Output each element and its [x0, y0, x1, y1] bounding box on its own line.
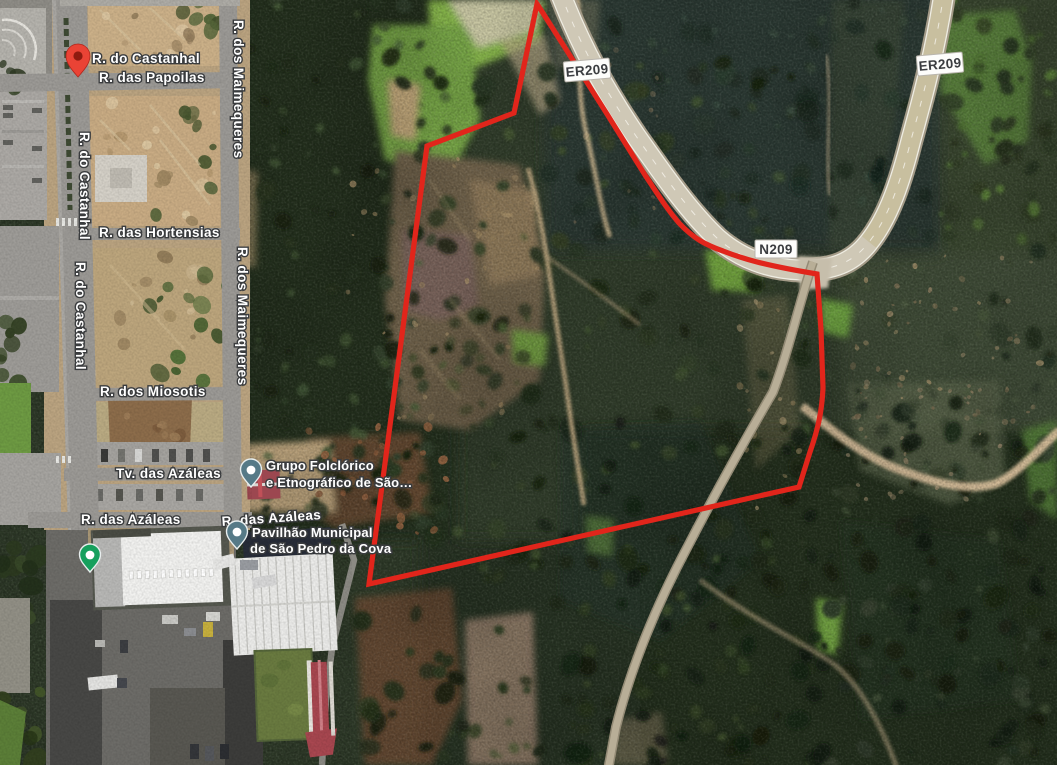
svg-text:R. dos Maimequeres: R. dos Maimequeres [235, 247, 250, 386]
svg-text:Tv. das Azáleas: Tv. das Azáleas [116, 466, 221, 481]
svg-text:R. das Hortensias: R. das Hortensias [99, 225, 220, 240]
svg-text:R. dos Miosotis: R. dos Miosotis [100, 384, 206, 399]
svg-text:Pavilhão Municipal: Pavilhão Municipal [252, 525, 373, 540]
svg-text:e Etnográfico de São…: e Etnográfico de São… [266, 475, 413, 490]
svg-text:R. do Castanhal: R. do Castanhal [92, 51, 200, 66]
svg-text:R. das Azáleas: R. das Azáleas [81, 512, 181, 527]
svg-text:N209: N209 [759, 242, 792, 257]
svg-text:R. dos Maimequeres: R. dos Maimequeres [231, 20, 246, 159]
svg-text:R. do Castanhal: R. do Castanhal [73, 262, 88, 370]
svg-text:R. das Papoilas: R. das Papoilas [99, 70, 205, 85]
svg-text:R. do Castanhal: R. do Castanhal [77, 132, 92, 240]
svg-text:Grupo Folclórico: Grupo Folclórico [266, 458, 374, 473]
svg-text:de São Pedro da Cova: de São Pedro da Cova [250, 541, 392, 556]
